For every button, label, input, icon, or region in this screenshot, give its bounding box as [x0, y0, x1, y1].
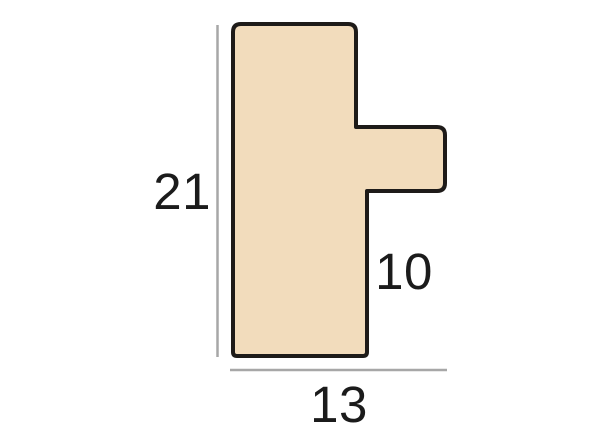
profile-drawing [0, 0, 600, 444]
moulding-profile-diagram: 21 10 13 [0, 0, 600, 444]
height-dimension-label: 21 [61, 166, 211, 217]
profile-shape [233, 24, 445, 356]
width-dimension-label: 13 [264, 379, 414, 430]
rebate-depth-dimension-label: 10 [329, 246, 479, 297]
